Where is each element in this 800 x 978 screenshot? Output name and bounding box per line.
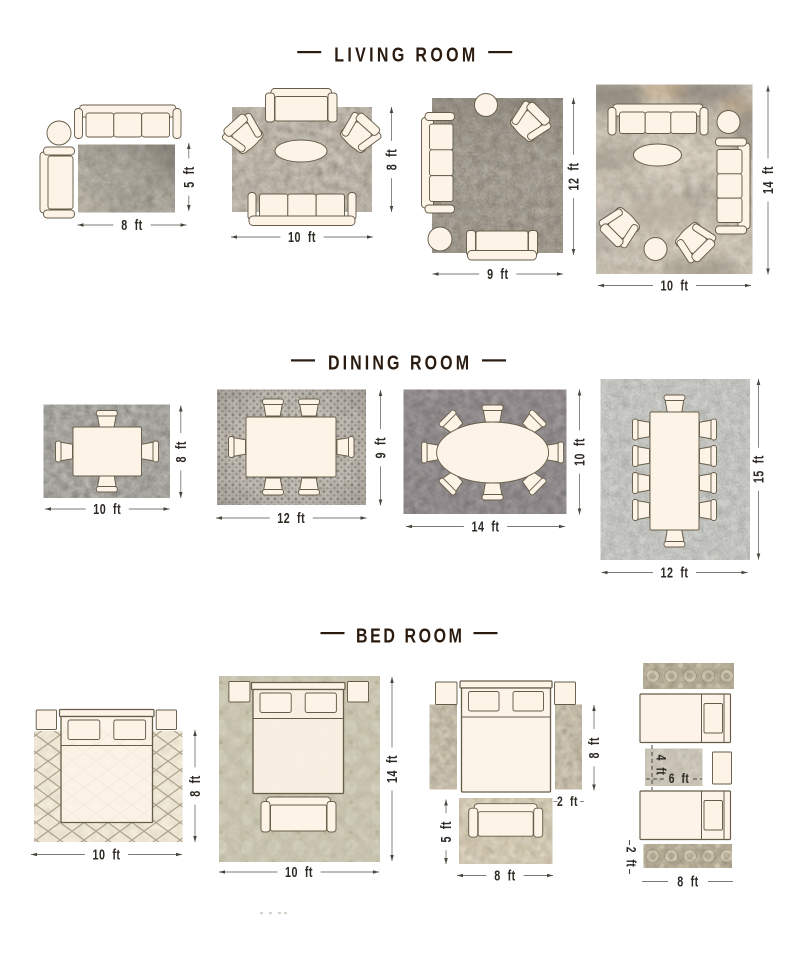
svg-text:DINING ROOM: DINING ROOM (328, 351, 469, 374)
svg-text:8 ft: 8 ft (677, 873, 699, 890)
svg-text:12 ft: 12 ft (565, 162, 582, 190)
svg-text:2 ft: 2 ft (623, 847, 639, 868)
svg-text:10 ft: 10 ft (661, 277, 689, 294)
svg-text:9 ft: 9 ft (372, 437, 389, 459)
svg-text:8 ft: 8 ft (383, 149, 400, 171)
svg-text:LIVING ROOM: LIVING ROOM (334, 42, 475, 65)
svg-text:14 ft: 14 ft (383, 755, 400, 783)
svg-text:4 ft: 4 ft (653, 755, 669, 776)
svg-text:10 ft: 10 ft (571, 438, 588, 466)
svg-text:8 ft: 8 ft (494, 867, 516, 884)
svg-text:9 ft: 9 ft (487, 265, 509, 282)
svg-text:14 ft: 14 ft (759, 166, 776, 194)
svg-text:14 ft: 14 ft (472, 518, 500, 535)
svg-text:2 ft: 2 ft (557, 794, 578, 810)
svg-text:8 ft: 8 ft (585, 737, 602, 759)
svg-text:12 ft: 12 ft (277, 509, 305, 526)
svg-text:8 ft: 8 ft (186, 775, 203, 797)
svg-text:6 ft: 6 ft (669, 771, 690, 787)
svg-text:8 ft: 8 ft (172, 441, 189, 463)
svg-text:12 ft: 12 ft (661, 564, 689, 581)
svg-text:10 ft: 10 ft (93, 500, 121, 517)
svg-text:10 ft: 10 ft (93, 846, 121, 863)
svg-text:8 ft: 8 ft (121, 216, 143, 233)
svg-text:5 ft: 5 ft (437, 821, 454, 843)
svg-text:5 ft: 5 ft (180, 166, 197, 188)
svg-text:15 ft: 15 ft (750, 455, 767, 483)
svg-text:10 ft: 10 ft (288, 228, 316, 245)
svg-text:10 ft: 10 ft (285, 863, 313, 880)
svg-text:BED ROOM: BED ROOM (356, 623, 462, 646)
